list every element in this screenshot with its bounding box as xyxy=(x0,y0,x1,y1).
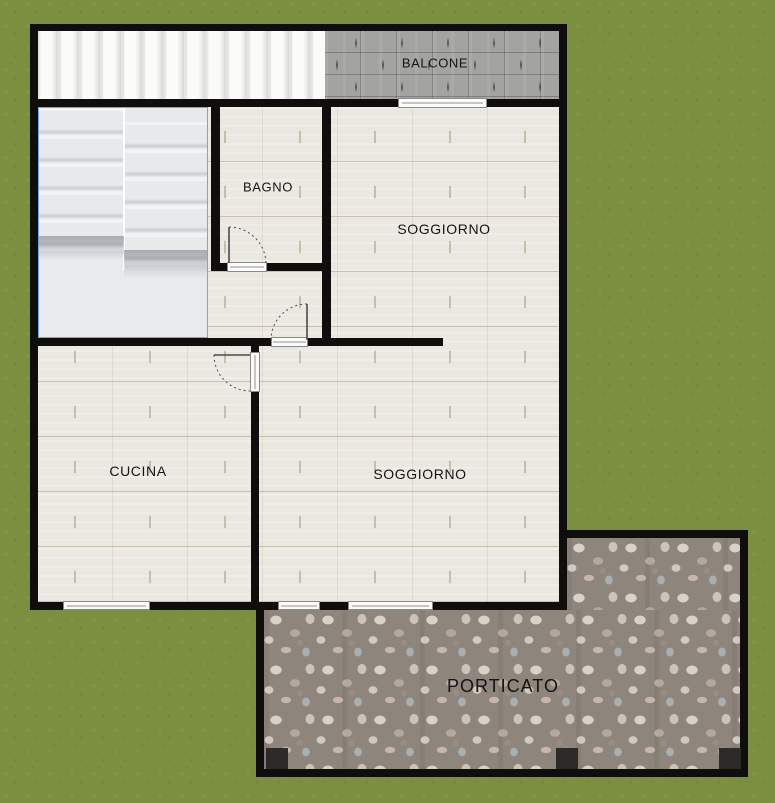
wall-stairs-bagno xyxy=(211,107,220,271)
window-glass-line xyxy=(352,605,428,607)
room-label-cucina: CUCINA xyxy=(109,464,166,478)
stair-flight-right xyxy=(124,108,207,268)
cucina-window xyxy=(63,601,150,610)
wall-corridor-soggiorno xyxy=(322,107,331,346)
stair-shadow-right xyxy=(124,250,207,278)
balcone-sliding-door xyxy=(398,98,487,108)
stair-shadow-left xyxy=(39,236,124,260)
room-label-soggiorno-bottom: SOGGIORNO xyxy=(373,467,466,481)
wall-mid-horizontal xyxy=(38,338,443,346)
wall-exterior-top xyxy=(30,24,567,31)
room-label-soggiorno-top: SOGGIORNO xyxy=(397,222,490,236)
stairwell xyxy=(38,107,208,338)
room-label-bagno: BAGNO xyxy=(243,181,293,194)
room-label-balcone: BALCONE xyxy=(402,57,468,70)
room-label-porticato: PORTICATO xyxy=(447,677,559,695)
sliding-door-rail xyxy=(402,102,482,104)
wall-porticato-top xyxy=(565,530,748,538)
corridor-door-threshold xyxy=(271,337,308,347)
door-leaf-bar xyxy=(273,341,305,343)
porticato-pillar xyxy=(556,748,578,769)
wall-porticato-bottom xyxy=(256,769,748,777)
bagno-door-threshold xyxy=(227,262,267,272)
wall-porticato-left xyxy=(256,602,264,777)
soggiorno-window-large xyxy=(348,601,433,610)
porticato-pillar xyxy=(266,748,288,769)
wall-exterior-right xyxy=(559,24,567,610)
yard-grass-background: BALCONE BAGNO SOGGIORNO CUCINA SOGGIORNO… xyxy=(0,0,775,803)
wall-exterior-left xyxy=(30,24,38,610)
porticato-pillar xyxy=(719,748,741,769)
door-leaf-bar xyxy=(254,355,256,390)
door-leaf-bar xyxy=(230,266,265,268)
terrace-planks xyxy=(38,31,325,99)
window-glass-line xyxy=(67,605,145,607)
cucina-door-threshold xyxy=(250,352,260,392)
soggiorno-window-small xyxy=(278,601,320,610)
stair-flight-left xyxy=(39,108,124,256)
porticato-floor-right-extension xyxy=(567,538,740,610)
window-glass-line xyxy=(281,605,318,607)
wall-porticato-right xyxy=(740,530,748,777)
